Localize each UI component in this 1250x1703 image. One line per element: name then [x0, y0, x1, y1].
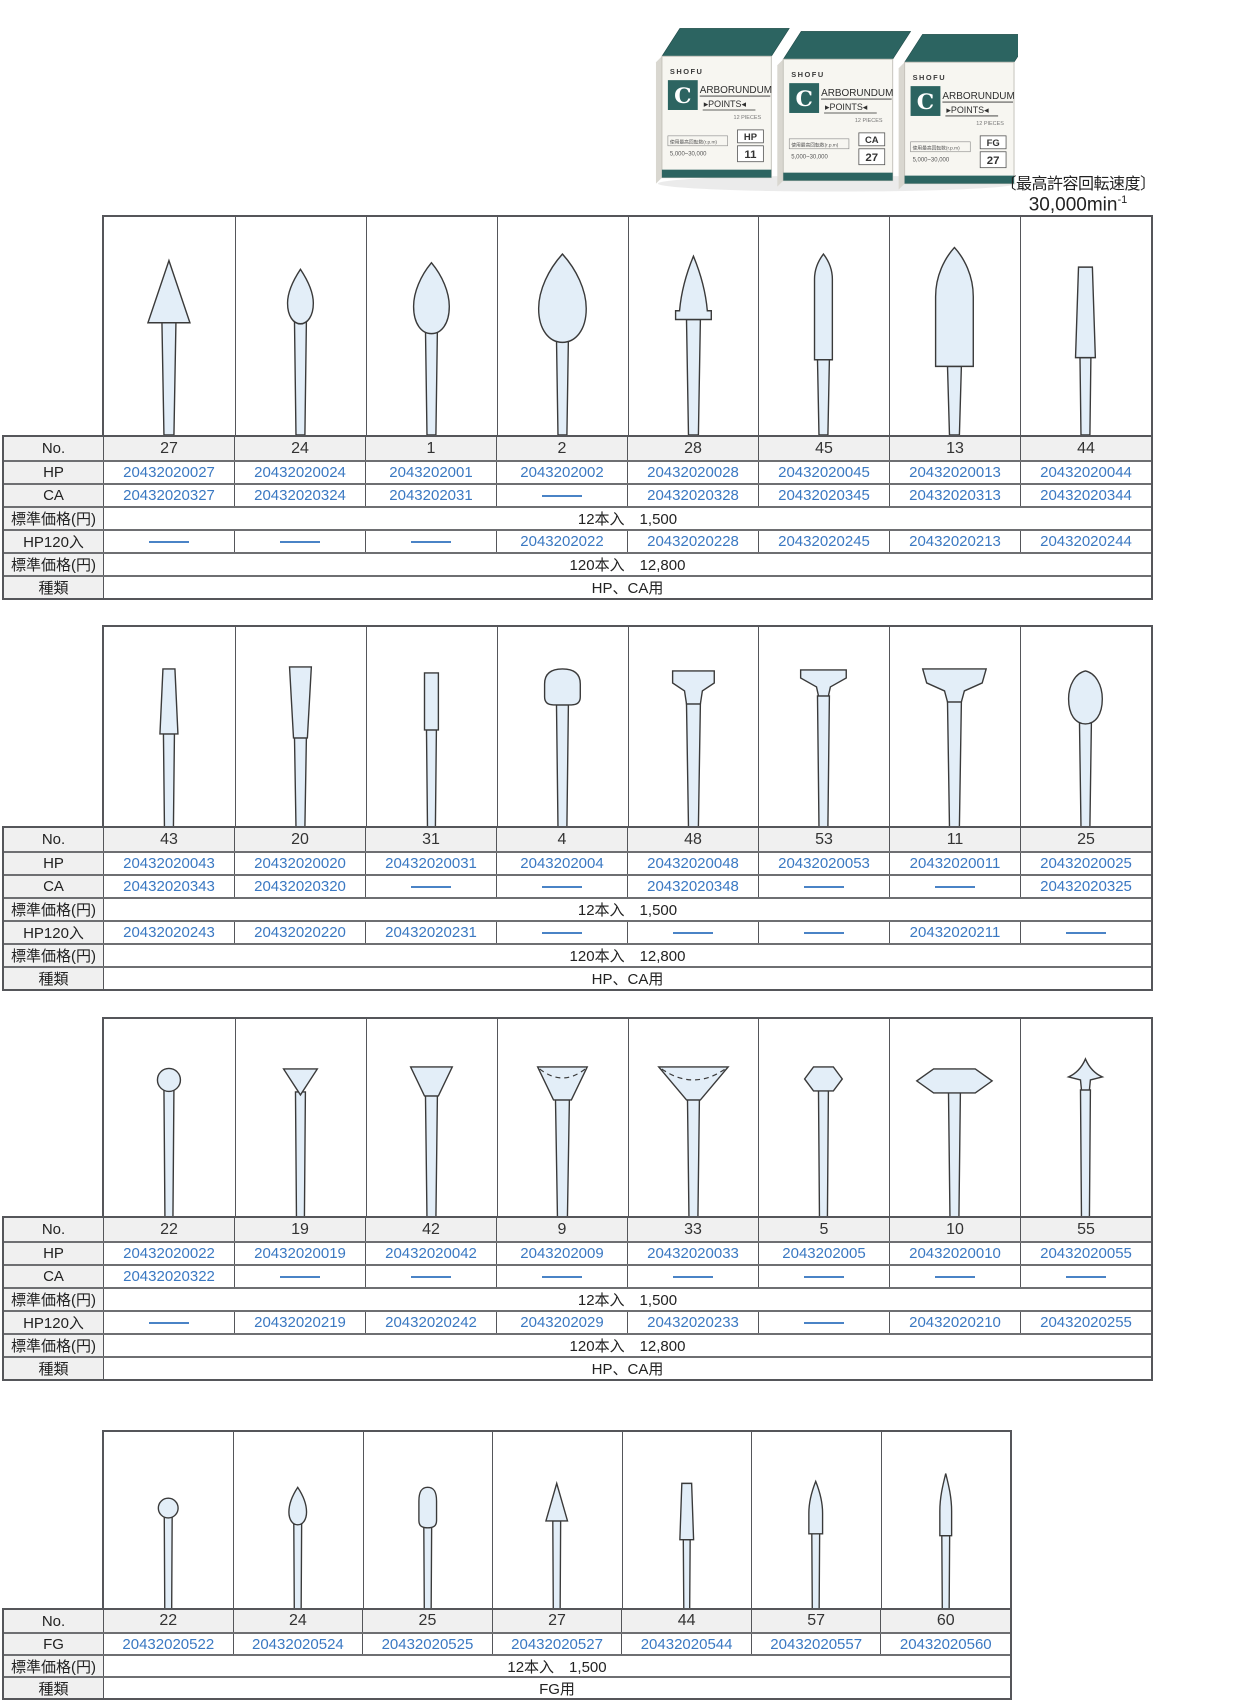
bur-shape-cell — [497, 627, 628, 827]
shape-number-cell: 43 — [104, 828, 234, 851]
max-speed-note: 〔最高許容回転速度〕 30,000min-1 — [992, 176, 1164, 217]
product-box-fg: SHOFUCARBORUNDUM▸POINTS◂12 PIECES使用最高回転数… — [899, 34, 1018, 189]
product-code[interactable]: 20432020322 — [123, 1268, 215, 1285]
row-label: 標準価格(円) — [4, 1289, 104, 1310]
product-code[interactable]: 20432020024 — [254, 464, 346, 481]
not-available-dash — [804, 932, 844, 934]
pieces-text: 12 PIECES — [855, 118, 883, 124]
shape-number: 45 — [815, 440, 833, 458]
row-label: 種類 — [4, 577, 104, 598]
product-code-cell — [365, 876, 496, 897]
shape-number-cell: 22 — [104, 1610, 233, 1632]
shape-number-cell: 19 — [234, 1218, 365, 1241]
flame-icon — [629, 217, 759, 435]
bur-shape-cell — [889, 1019, 1020, 1219]
row-label: 標準価格(円) — [4, 899, 104, 920]
brand-text: SHOFU — [670, 67, 704, 76]
tee-small-icon — [629, 627, 759, 827]
type-code: HP — [744, 132, 757, 143]
product-code-cell — [496, 876, 627, 897]
shape-number: 4 — [558, 831, 567, 849]
product-code-cell — [496, 485, 627, 506]
product-code-cell — [365, 531, 496, 552]
product-code-cell: 20432020328 — [627, 485, 758, 506]
flame-slim-tall-icon — [882, 1432, 1010, 1610]
product-code-cell: 20432020557 — [751, 1634, 881, 1654]
logo-c: C — [674, 83, 691, 109]
not-available-dash — [935, 1276, 975, 1278]
shape-no: 11 — [744, 149, 757, 161]
product-code[interactable]: 20432020544 — [641, 1636, 733, 1653]
product-code-cell: 20432020024 — [234, 462, 365, 483]
product-code[interactable]: 20432020010 — [909, 1245, 1001, 1262]
taper-small-icon — [104, 627, 235, 827]
shape-number-cell: 10 — [889, 1218, 1020, 1241]
shape-number-cell: 11 — [889, 828, 1020, 851]
product-code-cell — [1020, 1266, 1151, 1287]
shape-number: 53 — [815, 831, 833, 849]
product-code-cell: 20432020325 — [1020, 876, 1151, 897]
product-code-cell: 20432020031 — [365, 853, 496, 874]
shape-number-cell: 60 — [880, 1610, 1010, 1632]
product-code[interactable]: 20432020044 — [1040, 464, 1132, 481]
row-label: No. — [4, 828, 104, 851]
logo-c: C — [917, 89, 934, 115]
product-code[interactable]: 20432020320 — [254, 878, 346, 895]
shape-number-cell: 5 — [758, 1218, 889, 1241]
product-code-cell: 20432020219 — [234, 1312, 365, 1333]
product-code[interactable]: 20432020043 — [123, 855, 215, 872]
product-code[interactable]: 20432020245 — [778, 533, 870, 550]
lens-wide-icon — [890, 1019, 1020, 1219]
table-row-ca: CA20432020343204320203202043202034820432… — [4, 874, 1151, 897]
product-code-cell: 20432020244 — [1020, 531, 1151, 552]
table-row-type: 種類FG用 — [4, 1676, 1010, 1698]
pieces-text: 12 PIECES — [734, 115, 762, 121]
product-code-cell: 20432020527 — [492, 1634, 622, 1654]
product-code[interactable]: 20432020328 — [647, 487, 739, 504]
shape-number: 5 — [820, 1221, 829, 1239]
mushroom-icon — [498, 627, 628, 827]
product-code-cell: 20432020211 — [889, 922, 1020, 943]
product-code[interactable]: 2043202022 — [520, 533, 603, 550]
spec-label: 使用最高回転数(r.p.m) — [913, 144, 961, 151]
product-code-cell — [496, 1266, 627, 1287]
product-code-cell: 20432020322 — [104, 1266, 234, 1287]
product-code[interactable]: 20432020243 — [123, 924, 215, 941]
row-label: CA — [4, 485, 104, 506]
product-code-cell — [365, 1266, 496, 1287]
bur-shape-cell — [104, 1432, 233, 1610]
box-bottom-edge — [662, 170, 771, 178]
table-row-price12: 標準価格(円)12本入 1,500 — [4, 506, 1151, 529]
product-code[interactable]: 20432020025 — [1040, 855, 1132, 872]
product-code-cell: 20432020027 — [104, 462, 234, 483]
bur-shape-cell — [881, 1432, 1010, 1610]
table-row-price12: 標準価格(円)12本入 1,500 — [4, 1654, 1010, 1676]
inverted-trapezoid-icon — [367, 1019, 497, 1219]
shape-number-cell: 25 — [362, 1610, 492, 1632]
shape-number: 27 — [548, 1612, 566, 1630]
product-code-cell: 20432020255 — [1020, 1312, 1151, 1333]
table-row-ca: CA20432020322 — [4, 1264, 1151, 1287]
shape-number-cell: 31 — [365, 828, 496, 851]
catalog-page: SHOFUCARBORUNDUM▸POINTS◂12 PIECES使用最高回転数… — [0, 0, 1250, 1703]
product-code[interactable]: 20432020525 — [382, 1636, 474, 1653]
product-code-cell: 2043202004 — [496, 853, 627, 874]
not-available-dash — [804, 886, 844, 888]
product-code-cell: 20432020028 — [627, 462, 758, 483]
product-code-cell: 20432020044 — [1020, 462, 1151, 483]
table-row-price120: 標準価格(円)120本入 12,800 — [4, 943, 1151, 966]
product-code[interactable]: 2043202001 — [389, 464, 472, 481]
product-code[interactable]: 20432020228 — [647, 533, 739, 550]
product-code[interactable]: 20432020048 — [647, 855, 739, 872]
product-code[interactable]: 2043202004 — [520, 855, 603, 872]
product-code[interactable]: 20432020020 — [254, 855, 346, 872]
inverted-cone-icon — [236, 1019, 366, 1219]
bur-shape-cell — [104, 217, 235, 435]
table-row-price120: 標準価格(円)120本入 12,800 — [4, 1333, 1151, 1356]
taper-tiny-icon — [623, 1432, 751, 1610]
product-code[interactable]: 20432020027 — [123, 464, 215, 481]
max-speed-value: 30,000min-1 — [992, 194, 1164, 216]
shape-number: 22 — [160, 1221, 178, 1239]
product-code[interactable]: 2043202031 — [389, 487, 472, 504]
row-label: 種類 — [4, 1358, 104, 1379]
product-code[interactable]: 20432020211 — [910, 924, 1001, 941]
product-code[interactable]: 20432020031 — [385, 855, 477, 872]
product-code-cell: 20432020525 — [362, 1634, 492, 1654]
table-row-price12: 標準価格(円)12本入 1,500 — [4, 897, 1151, 920]
shape-number: 11 — [947, 831, 964, 849]
product-code[interactable]: 20432020219 — [254, 1314, 346, 1331]
shape-number-cell: 20 — [234, 828, 365, 851]
tee-wide-icon — [890, 627, 1020, 827]
shape-number-cell: 25 — [1020, 828, 1151, 851]
table-row-type: 種類HP、CA用 — [4, 1356, 1151, 1379]
shape-number: 57 — [807, 1612, 825, 1630]
product-code-cell: 20432020022 — [104, 1243, 234, 1264]
shape-number-cell: 22 — [104, 1218, 234, 1241]
shape-number-cell: 55 — [1020, 1218, 1151, 1241]
product-code[interactable]: 2043202005 — [782, 1245, 865, 1262]
box-side — [899, 62, 905, 189]
row-label: 標準価格(円) — [4, 554, 104, 575]
shape-number: 27 — [160, 440, 178, 458]
product-code-cell: 20432020313 — [889, 485, 1020, 506]
product-code-cell: 20432020042 — [365, 1243, 496, 1264]
teardrop-medium-icon — [367, 217, 497, 435]
table-row-type: 種類HP、CA用 — [4, 575, 1151, 598]
product-code-cell: 2043202009 — [496, 1243, 627, 1264]
table-rows: No.432031448531125HP20432020043204320200… — [2, 826, 1153, 991]
product-code-cell: 20432020327 — [104, 485, 234, 506]
box-top — [905, 34, 1018, 62]
product-code[interactable]: 20432020042 — [385, 1245, 477, 1262]
product-code-cell: 20432020524 — [233, 1634, 363, 1654]
product-code[interactable]: 20432020255 — [1040, 1314, 1132, 1331]
shape-number: 60 — [937, 1612, 955, 1630]
product-code[interactable]: 20432020522 — [122, 1636, 214, 1653]
not-available-dash — [542, 932, 582, 934]
brand-text: SHOFU — [791, 70, 825, 79]
not-available-dash — [542, 886, 582, 888]
table-row-price120: 標準価格(円)120本入 12,800 — [4, 552, 1151, 575]
row-label: CA — [4, 1266, 104, 1287]
product-code[interactable]: 20432020527 — [511, 1636, 603, 1653]
merged-type: FG用 — [104, 1678, 1010, 1698]
product-code-cell: 20432020210 — [889, 1312, 1020, 1333]
brand-text: SHOFU — [913, 73, 947, 82]
bur-shape-cell — [1020, 1019, 1151, 1219]
shape-number: 2 — [558, 440, 567, 458]
row-label: 標準価格(円) — [4, 508, 104, 529]
bur-shape-cell — [1020, 217, 1151, 435]
shape-number: 25 — [419, 1612, 437, 1630]
cone-tiny-icon — [493, 1432, 621, 1610]
row-label: HP120入 — [4, 1312, 104, 1333]
product-code-cell: 20432020045 — [758, 462, 889, 483]
shape-number: 22 — [159, 1612, 177, 1630]
not-available-dash — [411, 1276, 451, 1278]
product-code[interactable]: 20432020348 — [647, 878, 739, 895]
product-code-cell: 20432020055 — [1020, 1243, 1151, 1264]
bur-shape-cell — [628, 1019, 759, 1219]
bur-shape-cell — [497, 1019, 628, 1219]
row-label: HP — [4, 853, 104, 874]
shape-number: 44 — [678, 1612, 696, 1630]
shape-row — [102, 1017, 1153, 1218]
product-code-cell: 2043202001 — [365, 462, 496, 483]
table-row-ca: CA20432020327204320203242043202031204320… — [4, 483, 1151, 506]
table-rows: No.22194293351055HP204320200222043202001… — [2, 1216, 1153, 1381]
shape-number: 43 — [160, 831, 178, 849]
product-code-cell — [104, 531, 234, 552]
shape-number: 1 — [427, 440, 436, 458]
row-label: HP120入 — [4, 922, 104, 943]
product-code[interactable]: 20432020557 — [770, 1636, 862, 1653]
shape-number: 44 — [1077, 440, 1095, 458]
product-code[interactable]: 20432020019 — [254, 1245, 346, 1262]
merged-price120: 120本入 12,800 — [104, 554, 1151, 575]
product-subtitle: ▸POINTS◂ — [946, 105, 989, 115]
bur-shape-cell — [889, 217, 1020, 435]
shape-number: 31 — [422, 831, 440, 849]
product-code-cell — [627, 1266, 758, 1287]
shape-number-cell: 53 — [758, 828, 889, 851]
product-code-cell: 20432020019 — [234, 1243, 365, 1264]
product-box-hp: SHOFUCARBORUNDUM▸POINTS◂12 PIECES使用最高回転数… — [656, 28, 789, 183]
bur-shape-cell — [758, 627, 889, 827]
merged-type: HP、CA用 — [104, 577, 1151, 598]
ball-small-icon — [104, 1432, 233, 1610]
product-subtitle: ▸POINTS◂ — [825, 102, 868, 112]
shape-number: 33 — [684, 1221, 702, 1239]
product-code[interactable]: 20432020345 — [778, 487, 870, 504]
product-code-cell: 20432020025 — [1020, 853, 1151, 874]
row-label: No. — [4, 1610, 104, 1632]
product-code[interactable]: 20432020344 — [1040, 487, 1132, 504]
product-code-cell — [234, 531, 365, 552]
spec-value: 5,000~30,000 — [670, 152, 707, 158]
row-label: HP — [4, 1243, 104, 1264]
shape-number-cell: 9 — [496, 1218, 627, 1241]
product-code-cell — [889, 876, 1020, 897]
trapezoid-icon — [236, 627, 366, 827]
product-code[interactable]: 2043202009 — [520, 1245, 603, 1262]
merged-type: HP、CA用 — [104, 1358, 1151, 1379]
product-code-cell: 20432020242 — [365, 1312, 496, 1333]
product-title: ARBORUNDUM — [700, 85, 772, 96]
product-code-cell: 20432020560 — [880, 1634, 1010, 1654]
product-code[interactable]: 20432020033 — [647, 1245, 739, 1262]
bur-shape-cell — [233, 1432, 362, 1610]
product-code[interactable]: 20432020560 — [900, 1636, 992, 1653]
product-code[interactable]: 20432020213 — [909, 533, 1001, 550]
product-code-cell: 20432020053 — [758, 853, 889, 874]
not-available-dash — [411, 541, 451, 543]
product-code-cell — [758, 1312, 889, 1333]
product-code-cell — [496, 922, 627, 943]
shape-number-cell: 45 — [758, 437, 889, 460]
type-code: CA — [865, 135, 879, 146]
product-code-cell — [889, 1266, 1020, 1287]
table-rows: No.22242527445760FG204320205222043202052… — [2, 1608, 1012, 1700]
product-code[interactable]: 20432020244 — [1040, 533, 1132, 550]
product-code-cell — [234, 1266, 365, 1287]
shape-number-cell: 27 — [104, 437, 234, 460]
bur-shape-cell — [366, 217, 497, 435]
egg-icon — [1021, 627, 1151, 827]
bur-shape-cell — [104, 1019, 235, 1219]
product-code-cell: 20432020010 — [889, 1243, 1020, 1264]
bur-shape-cell — [758, 217, 889, 435]
shape-number: 10 — [946, 1221, 964, 1239]
table-row-hp120: HP120入2043202024320432020220204320202312… — [4, 920, 1151, 943]
hexagon-small-icon — [759, 1019, 889, 1219]
shape-row — [102, 1430, 1012, 1610]
shape-number: 9 — [558, 1221, 567, 1239]
bud-tiny-icon — [234, 1432, 362, 1610]
product-box-ca: SHOFUCARBORUNDUM▸POINTS◂12 PIECES使用最高回転数… — [777, 31, 910, 186]
product-code[interactable]: 20432020022 — [123, 1245, 215, 1262]
product-code[interactable]: 20432020220 — [254, 924, 346, 941]
product-code-cell: 20432020011 — [889, 853, 1020, 874]
product-code[interactable]: 2043202029 — [520, 1314, 603, 1331]
product-code[interactable]: 20432020233 — [647, 1314, 739, 1331]
shape-number-cell: 44 — [1020, 437, 1151, 460]
product-code[interactable]: 20432020324 — [254, 487, 346, 504]
product-code[interactable]: 20432020325 — [1040, 878, 1132, 895]
table-row-hp120: HP120入2043202021920432020242204320202920… — [4, 1310, 1151, 1333]
product-code[interactable]: 2043202002 — [520, 464, 603, 481]
merged-price120: 120本入 12,800 — [104, 945, 1151, 966]
product-code[interactable]: 20432020327 — [123, 487, 215, 504]
table-row-hp: HP20432020027204320200242043202001204320… — [4, 460, 1151, 483]
bur-shape-cell — [492, 1432, 621, 1610]
product-code[interactable]: 20432020055 — [1040, 1245, 1132, 1262]
product-code-cell: 20432020231 — [365, 922, 496, 943]
not-available-dash — [542, 495, 582, 497]
product-code[interactable]: 20432020011 — [910, 855, 1001, 872]
product-code[interactable]: 20432020210 — [909, 1314, 1001, 1331]
row-label: No. — [4, 1218, 104, 1241]
cone-point-icon — [104, 217, 235, 435]
bur-shape-cell — [889, 627, 1020, 827]
taper-cylinder-icon — [1021, 217, 1151, 435]
type-code: FG — [987, 138, 1000, 149]
table-row-no: No.27241228451344 — [4, 437, 1151, 460]
merged-price12: 12本入 1,500 — [104, 1656, 1010, 1676]
shape-number: 24 — [291, 440, 309, 458]
shape-number-cell: 24 — [233, 1610, 363, 1632]
product-code[interactable]: 20432020028 — [647, 464, 739, 481]
not-available-dash — [280, 541, 320, 543]
product-code[interactable]: 20432020053 — [778, 855, 870, 872]
merged-price120: 120本入 12,800 — [104, 1335, 1151, 1356]
shape-number-cell: 2 — [496, 437, 627, 460]
table-row-hp120: HP120入2043202022204320202282043202024520… — [4, 529, 1151, 552]
spec-label: 使用最高回転数(r.p.m) — [670, 138, 718, 145]
product-code-cell: 20432020324 — [234, 485, 365, 506]
table-row-hp: HP20432020022204320200192043202004220432… — [4, 1241, 1151, 1264]
product-title: ARBORUNDUM — [942, 91, 1014, 102]
shape-number-cell: 4 — [496, 828, 627, 851]
product-code-cell: 20432020033 — [627, 1243, 758, 1264]
product-code-cell: 20432020220 — [234, 922, 365, 943]
shape-no: 27 — [987, 155, 1000, 167]
tee-flat-icon — [759, 627, 889, 827]
shape-number-cell: 57 — [751, 1610, 881, 1632]
product-code[interactable]: 20432020313 — [909, 487, 1001, 504]
not-available-dash — [935, 886, 975, 888]
bud-small-icon — [236, 217, 366, 435]
teardrop-large-icon — [498, 217, 628, 435]
not-available-dash — [542, 1276, 582, 1278]
max-speed-label: 〔最高許容回転速度〕 — [992, 176, 1164, 194]
not-available-dash — [149, 1322, 189, 1324]
row-label: HP — [4, 462, 104, 483]
merged-price12: 12本入 1,500 — [104, 508, 1151, 529]
row-label: 種類 — [4, 968, 104, 989]
spec-value: 5,000~30,000 — [913, 158, 950, 164]
bur-shape-cell — [497, 217, 628, 435]
shape-number-cell: 24 — [234, 437, 365, 460]
product-code[interactable]: 20432020242 — [385, 1314, 477, 1331]
bur-shape-cell — [1020, 627, 1151, 827]
shape-number: 20 — [291, 831, 309, 849]
shape-number: 28 — [684, 440, 702, 458]
shape-number-cell: 44 — [621, 1610, 751, 1632]
shape-number: 13 — [946, 440, 964, 458]
cup-icon — [498, 1019, 628, 1219]
product-code[interactable]: 20432020231 — [385, 924, 477, 941]
product-code[interactable]: 20432020343 — [123, 878, 215, 895]
row-label: No. — [4, 437, 104, 460]
bur-shape-cell — [622, 1432, 751, 1610]
product-code[interactable]: 20432020013 — [909, 464, 1001, 481]
product-code[interactable]: 20432020524 — [252, 1636, 344, 1653]
product-code-cell: 2043202029 — [496, 1312, 627, 1333]
bur-shape-cell — [366, 1019, 497, 1219]
product-code[interactable]: 20432020045 — [778, 464, 870, 481]
product-code-cell — [627, 922, 758, 943]
not-available-dash — [673, 932, 713, 934]
bur-shape-cell — [628, 217, 759, 435]
bur-shape-cell — [366, 627, 497, 827]
product-code-cell: 20432020348 — [627, 876, 758, 897]
